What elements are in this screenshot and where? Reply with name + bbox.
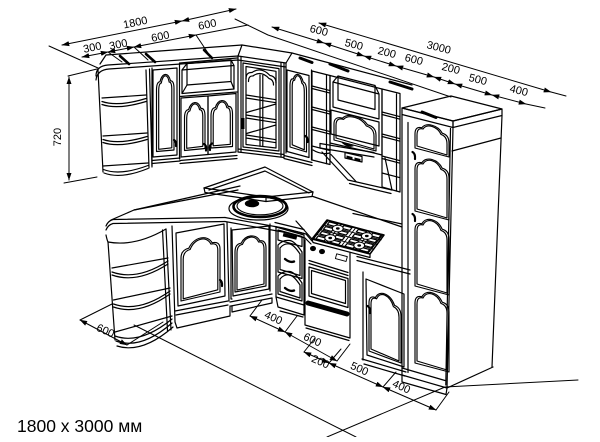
svg-text:1800 x 3000 мм: 1800 x 3000 мм <box>17 416 142 436</box>
svg-text:720: 720 <box>52 128 64 146</box>
